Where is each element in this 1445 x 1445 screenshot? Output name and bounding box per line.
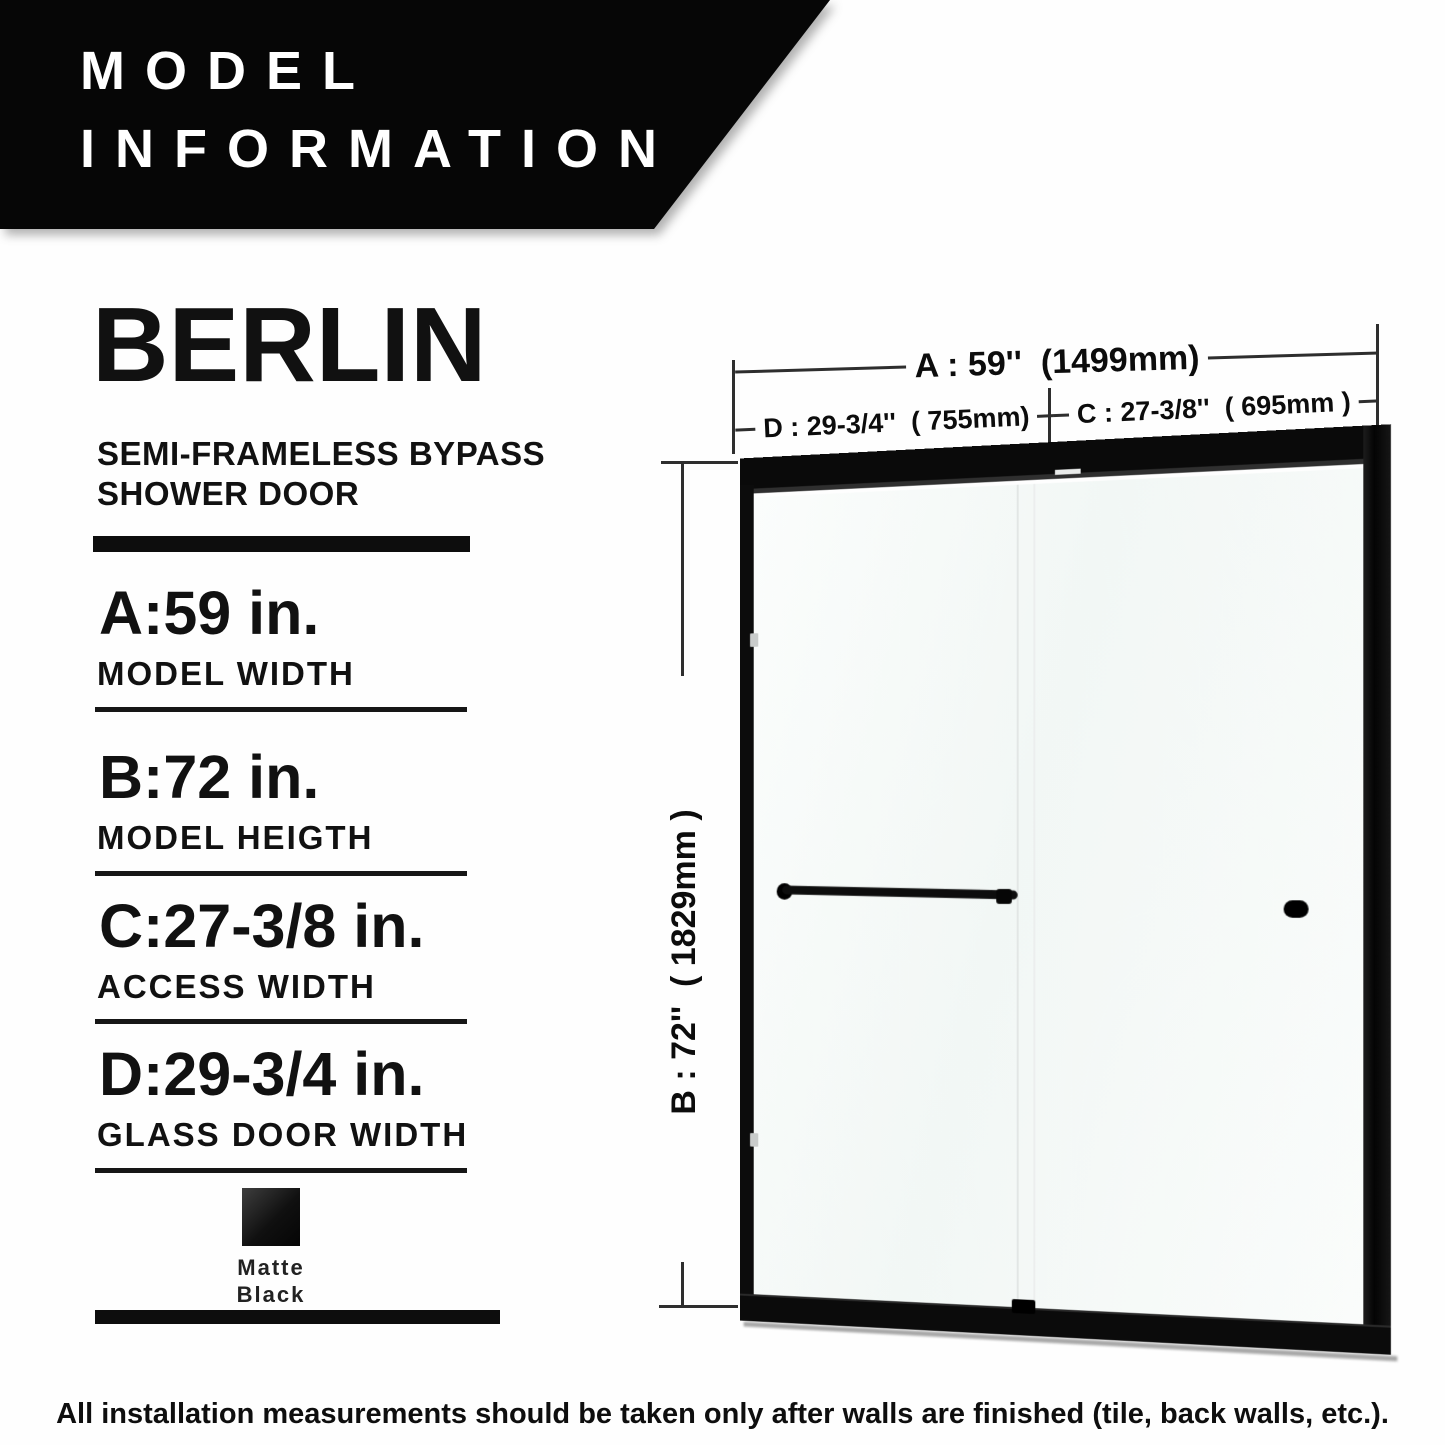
spec-d-value: D:29-3/4 in. [99,1044,424,1105]
finish-label-line1: Matte [211,1254,331,1281]
finish-swatch-matte-black [242,1188,300,1246]
divider-line [95,707,467,712]
wall-profile-clip [750,1133,758,1147]
right-wall-profile [1363,424,1391,1355]
spec-a-value: A:59 in. [99,583,319,644]
divider-line [95,1168,467,1173]
product-subtitle-line1: SEMI-FRAMELESS BYPASS [97,434,545,474]
divider-thick-top [93,536,470,552]
dimension-b-tick-bottom [659,1305,738,1308]
divider-line [95,871,467,876]
left-wall-profile [740,485,754,1302]
dimension-a-label: A : 59'' (1499mm) [906,341,1208,384]
dimension-line-segment [735,427,755,431]
bottom-rail-guide-block [1012,1299,1035,1314]
divider-line [95,1019,467,1024]
spec-d-label: GLASS DOOR WIDTH [97,1118,468,1151]
dimension-tick-right [1376,324,1379,432]
dimension-line-segment [735,365,906,373]
dimension-b-line-upper [681,464,684,676]
spec-a-label: MODEL WIDTH [97,657,355,690]
spec-c-value: C:27-3/8 in. [99,896,424,957]
dimension-b-tick-top [661,461,738,464]
product-subtitle: SEMI-FRAMELESS BYPASS SHOWER DOOR [97,434,545,514]
banner: MODEL INFORMATION [0,0,900,260]
model-information-sheet: MODEL INFORMATION BERLIN SEMI-FRAMELESS … [0,0,1445,1445]
installation-note: All installation measurements should be … [0,1398,1445,1431]
dimension-a-line: A : 59'' (1499mm) [735,332,1380,391]
banner-shape [0,0,830,229]
product-subtitle-line2: SHOWER DOOR [97,474,545,514]
dimension-b-line-lower [681,1262,684,1308]
banner-title-line1: MODEL [80,44,375,98]
spec-b-value: B:72 in. [99,747,319,808]
glass-panel-edge [1033,484,1035,1310]
divider-thick-bottom [95,1310,500,1324]
dimension-line-segment [1207,351,1378,359]
towel-bar-bracket [996,889,1012,904]
glass-panels [754,468,1364,1326]
finish-label: Matte Black [211,1254,331,1308]
dimension-tick-left [732,360,735,454]
spec-c-label: ACCESS WIDTH [97,970,376,1003]
wall-profile-clip [750,633,758,647]
dimension-c-label: C : 27-3/8'' ( 695mm ) [1068,388,1359,428]
door-knob-handle [1284,900,1309,918]
shower-door-illustration [740,424,1391,1355]
dimension-d-label: D : 29-3/4'' ( 755mm) [755,402,1038,442]
dimension-b-label: B : 72'' ( 1829mm ) [667,809,701,1114]
dimension-tick-middle [1048,388,1051,442]
finish-label-line2: Black [211,1281,331,1308]
dimension-line-segment [1053,413,1069,417]
banner-title-line2: INFORMATION [80,122,677,176]
product-name: BERLIN [92,292,487,398]
spec-b-label: MODEL HEIGTH [97,821,373,854]
